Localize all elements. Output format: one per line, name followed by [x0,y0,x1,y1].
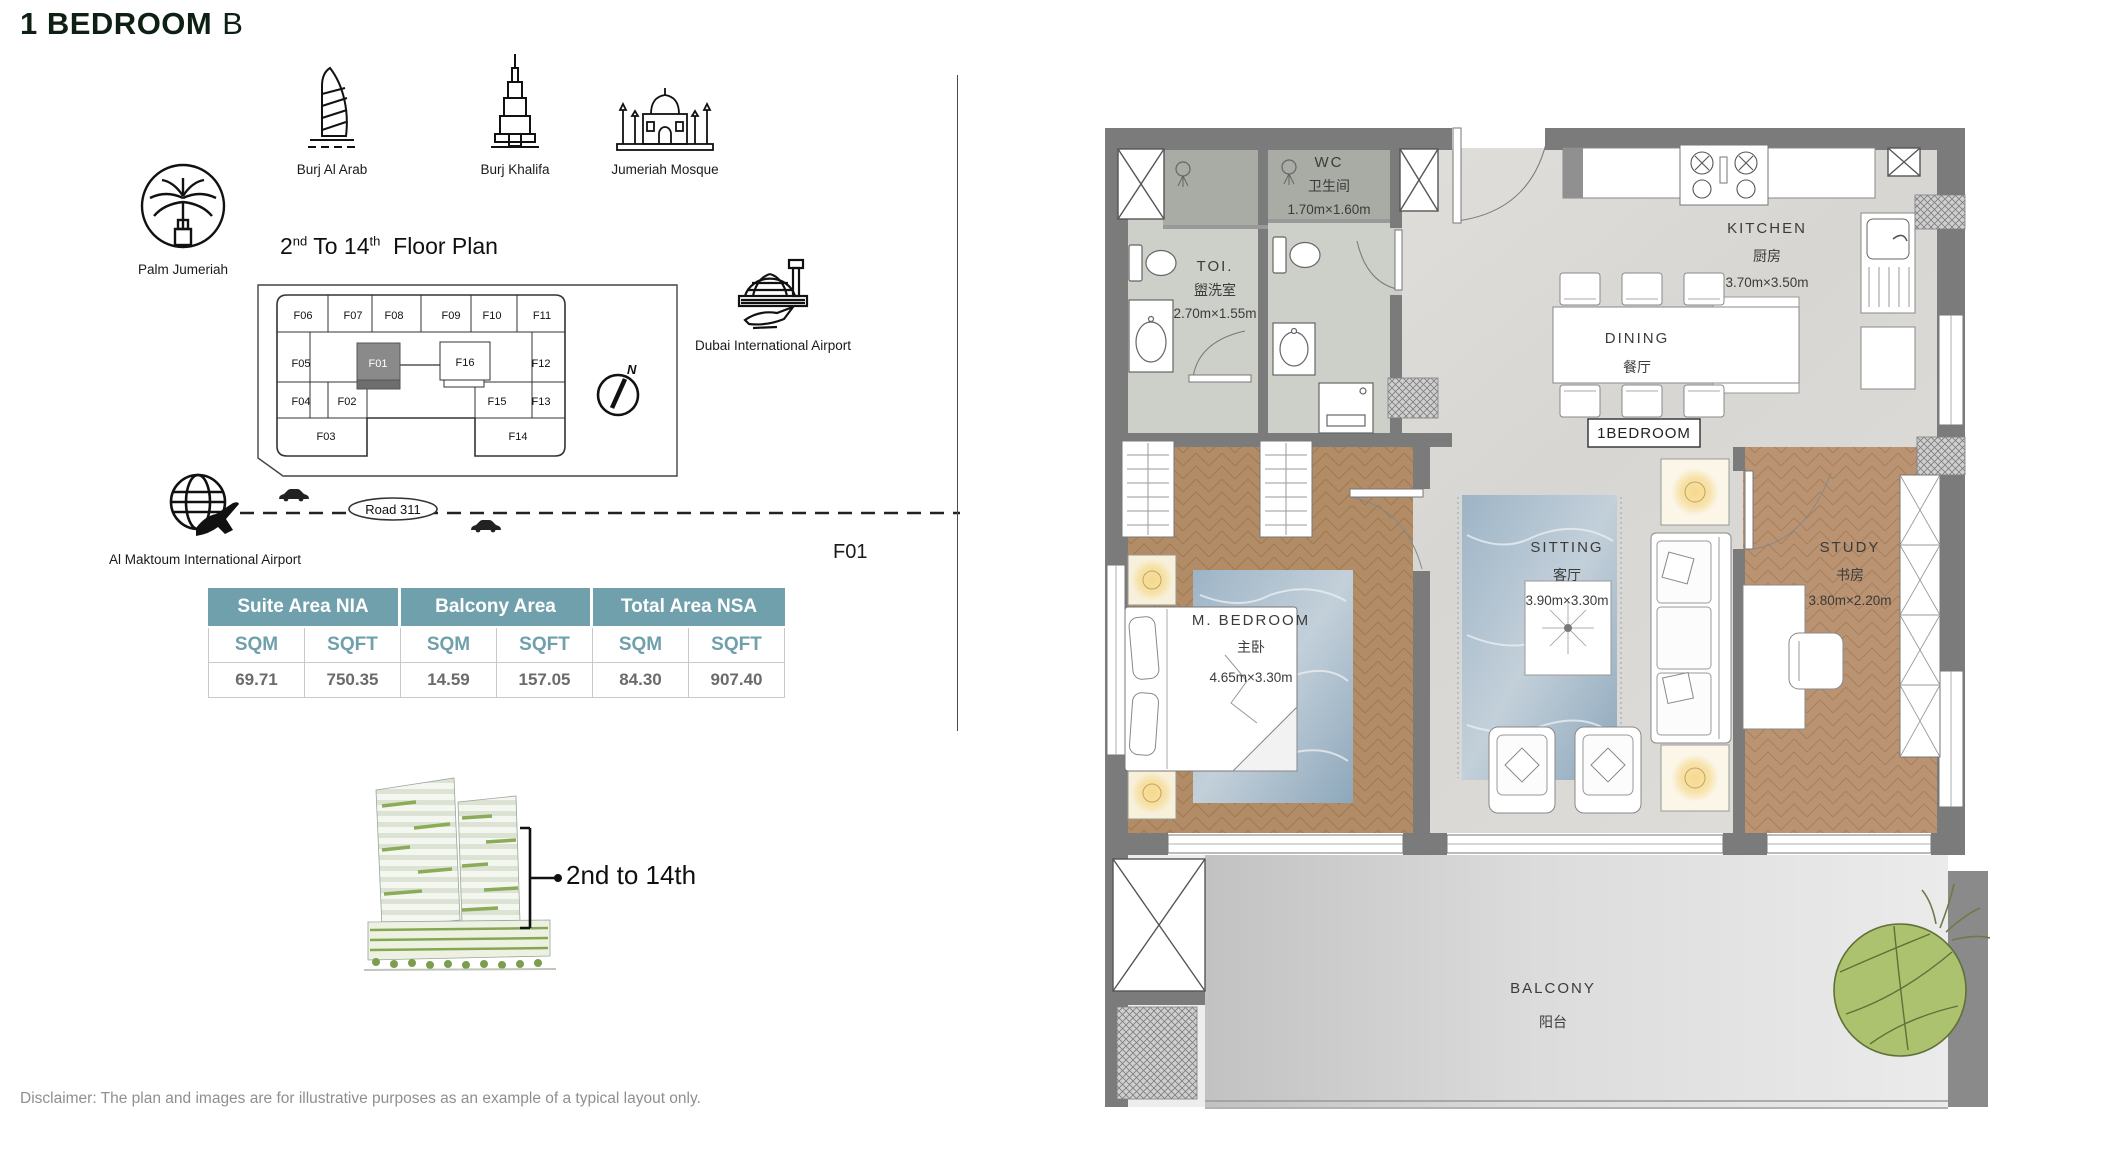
disclaimer-text: Disclaimer: The plan and images are for … [20,1090,701,1108]
room-dims-sitting: 3.90m×3.30m [1526,593,1609,608]
page-title-main: 1 BEDROOM [20,6,212,41]
room-label-balcony-cn: 阳台 [1539,1014,1567,1030]
sofa [1651,533,1731,743]
area-table-value-row: 69.71 750.35 14.59 157.05 84.30 907.40 [208,663,785,698]
north-compass-icon: N [598,362,638,415]
panel-divider [957,75,958,731]
area-table: Suite Area NIA Balcony Area Total Area N… [208,588,785,698]
shower-tile-left [1163,148,1268,228]
room-label-toi-cn: 盥洗室 [1194,282,1236,298]
room-label-balcony: BALCONY [1510,980,1596,997]
unit-header: SQFT [305,628,401,663]
stove-icon [1680,145,1768,205]
room-dims-toi: 2.70m×1.55m [1174,306,1257,321]
road-strip: Road 311 [150,484,962,536]
landmark-jumeriah-mosque: Jumeriah Mosque [600,84,730,177]
key-plan: F06 F07 F08 F09 F10 F11 F05 F04 F03 F02 … [246,278,706,485]
unit-label: F07 [344,310,363,322]
car-icon [471,520,501,532]
area-value: 157.05 [497,663,593,698]
door-leaf [1745,471,1753,549]
car-icon [279,489,309,501]
room-label-toi: TOI. [1197,258,1234,275]
room-label-sitting-cn: 客厅 [1553,567,1581,583]
palm-jumeriah-icon [136,162,230,256]
washing-machine-icon [1319,383,1373,433]
landmark-label: Dubai International Airport [695,338,851,353]
room-label-study: STUDY [1820,539,1881,556]
landmark-label: Burj Al Arab [297,162,368,177]
nightstand-lamp [1128,767,1176,819]
side-table-lamp [1661,745,1729,811]
door-leaf [1350,489,1423,497]
unit-label: F04 [292,396,311,408]
area-value: 14.59 [401,663,497,698]
area-value: 750.35 [305,663,401,698]
heading-sup: th [370,233,381,248]
side-table-lamp [1661,459,1729,525]
room-label-bedroom-cn: 主卧 [1237,639,1265,655]
floor-plan: 1BEDROOM WC 卫生间 1.70m×1.60m TOI. 盥洗室 2.7… [1105,115,1990,1125]
dubai-airport-icon [733,256,813,332]
sink-icon [1129,300,1173,372]
unit-label: F09 [442,310,461,322]
unit-label: F02 [338,396,357,408]
desk-chair [1789,633,1843,689]
unit-header: SQFT [689,628,785,663]
room-dims-kitchen: 3.70m×3.50m [1726,275,1809,290]
unit-label: F05 [292,358,311,370]
landmark-palm-jumeriah: Palm Jumeriah [118,162,248,277]
counter-end [1563,148,1583,198]
landmark-label: Jumeriah Mosque [611,162,718,177]
room-label-wc-cn: 卫生间 [1308,178,1350,194]
area-table-unit-header-row: SQM SQFT SQM SQFT SQM SQFT [208,628,785,663]
brochure-page: 1 BEDROOMB Burj Al Arab [0,0,2114,1162]
unit-label: F12 [532,358,551,370]
burj-khalifa-icon [491,54,539,156]
area-value: 84.30 [593,663,689,698]
unit-header: SQM [208,628,305,663]
kitchen-cabinet [1861,327,1915,389]
dining-table [1553,307,1799,383]
burj-al-arab-icon [306,64,358,156]
unit-label: F13 [532,396,551,408]
area-table-group-header-row: Suite Area NIA Balcony Area Total Area N… [208,588,785,628]
jumeriah-mosque-icon [613,84,717,156]
bed [1125,607,1297,771]
group-header: Total Area NSA [593,588,785,628]
landmark-burj-al-arab: Burj Al Arab [272,64,392,177]
unit-header: SQFT [497,628,593,663]
room-dims-bedroom: 4.65m×3.30m [1210,670,1293,685]
heading-mid: To 14 [313,233,369,259]
unit-label: F03 [317,431,336,443]
landmark-label: Burj Khalifa [480,162,549,177]
nightstand-lamp [1128,555,1176,605]
north-label: N [627,362,637,377]
key-plan-heading: 2nd To 14th Floor Plan [280,233,498,260]
heading-rest: Floor Plan [393,233,498,259]
unit-label: F06 [294,310,313,322]
room-label-kitchen: KITCHEN [1727,220,1807,237]
wardrobe [1122,441,1174,537]
heading-sup: nd [293,233,307,248]
unit-label: F15 [488,396,507,408]
room-label-wc: WC [1315,154,1344,171]
study-wardrobe [1900,475,1940,757]
unit-header: SQM [401,628,497,663]
unit-header: SQM [593,628,689,663]
heading-number: 2 [280,233,293,259]
armchair [1489,727,1555,813]
room-dims-wc: 1.70m×1.60m [1288,202,1371,217]
unit-label: F08 [385,310,404,322]
group-header: Suite Area NIA [208,588,401,628]
road-label: Road 311 [365,502,420,517]
room-label-bedroom: M. BEDROOM [1192,612,1310,629]
landmark-label: Al Maktoum International Airport [109,552,301,567]
landmark-burj-khalifa: Burj Khalifa [455,54,575,177]
unit-label: F14 [509,431,528,443]
unit-label: F16 [456,357,475,369]
landmark-label: Palm Jumeriah [138,262,228,277]
unit-tag-label: 1BEDROOM [1597,425,1691,442]
unit-tag: 1BEDROOM [1588,419,1700,447]
sink-icon [1273,323,1315,375]
room-label-dining-cn: 餐厅 [1623,359,1651,375]
unit-label: F11 [533,310,551,322]
area-value: 69.71 [208,663,305,698]
room-dims-study: 3.80m×2.20m [1809,593,1892,608]
floor-range-bracket [504,824,574,939]
room-label-dining: DINING [1605,330,1670,347]
page-title-suffix: B [222,6,243,41]
room-label-sitting: SITTING [1530,539,1603,556]
armchair [1575,727,1641,813]
room-label-kitchen-cn: 厨房 [1753,248,1781,264]
unit-label: F10 [483,310,502,322]
page-title: 1 BEDROOMB [20,6,243,42]
area-value: 907.40 [689,663,785,698]
floor-range-label: 2nd to 14th [566,860,696,891]
unit-label-selected: F01 [369,358,388,370]
selected-unit-callout: F01 [833,541,867,564]
landmark-dubai-airport: Dubai International Airport [678,256,868,353]
kitchen-sink-icon [1861,213,1915,313]
room-label-study-cn: 书房 [1836,567,1864,583]
group-header: Balcony Area [401,588,593,628]
wardrobe [1260,441,1312,537]
